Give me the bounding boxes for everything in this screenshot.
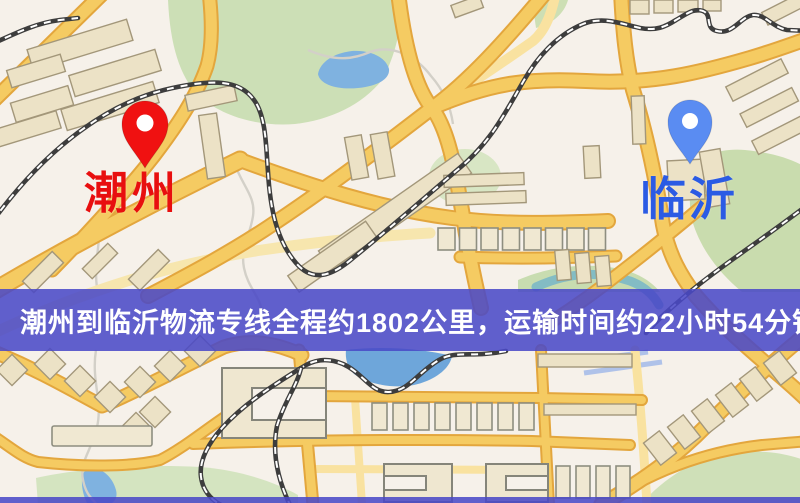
bottom-overlay-strip xyxy=(0,497,800,503)
origin-city-label: 潮州 xyxy=(84,172,180,216)
route-info-text: 潮州到临沂物流专线全程约1802公里，运输时间约22小时54分钟. xyxy=(20,301,800,340)
map-canvas[interactable] xyxy=(0,0,800,503)
route-info-banner: 潮州到临沂物流专线全程约1802公里，运输时间约22小时54分钟. xyxy=(0,289,800,351)
destination-city-label: 临沂 xyxy=(640,176,738,222)
origin-pin-dot xyxy=(137,115,154,132)
logistics-route-map: 潮州 临沂 潮州到临沂物流专线全程约1802公里，运输时间约22小时54分钟. xyxy=(0,0,800,503)
destination-pin-dot xyxy=(682,113,698,129)
